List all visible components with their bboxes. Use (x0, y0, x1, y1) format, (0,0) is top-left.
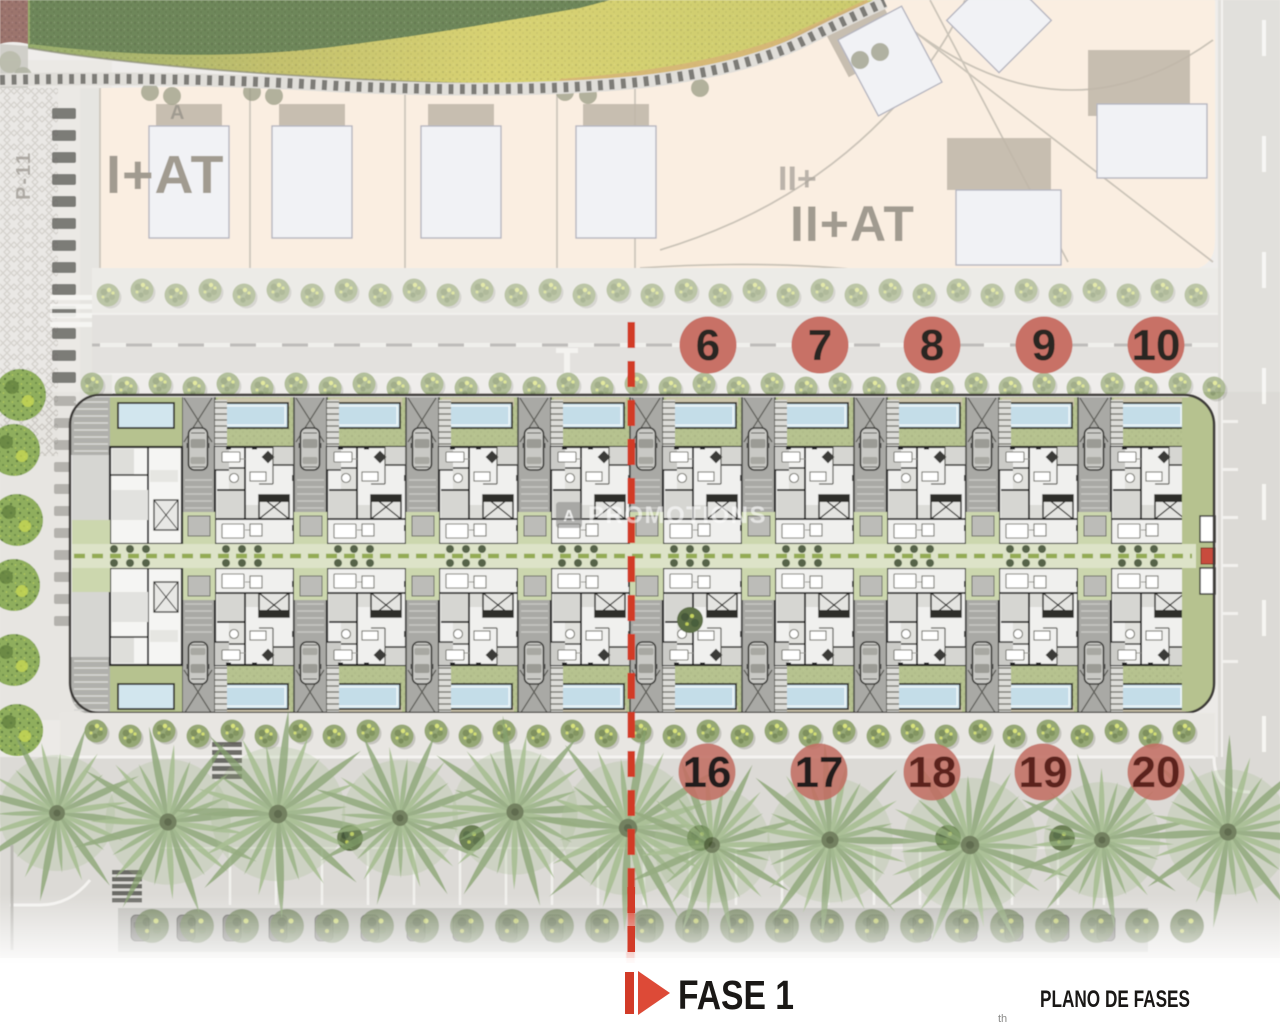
svg-text:A: A (563, 508, 575, 525)
svg-text:16: 16 (683, 748, 732, 797)
svg-text:7: 7 (808, 321, 832, 370)
svg-text:9: 9 (1032, 321, 1056, 370)
svg-text:FASE 1: FASE 1 (678, 972, 794, 1018)
svg-text:PROMOTIONS: PROMOTIONS (588, 502, 767, 529)
svg-text:10: 10 (1132, 321, 1181, 370)
svg-text:19: 19 (1019, 748, 1068, 797)
svg-text:18: 18 (908, 748, 957, 797)
svg-text:8: 8 (920, 321, 944, 370)
svg-text:th: th (998, 1013, 1007, 1024)
svg-text:20: 20 (1132, 748, 1181, 797)
svg-text:17: 17 (795, 748, 844, 797)
svg-text:PLANO DE FASES: PLANO DE FASES (1040, 986, 1190, 1013)
svg-text:6: 6 (696, 321, 720, 370)
